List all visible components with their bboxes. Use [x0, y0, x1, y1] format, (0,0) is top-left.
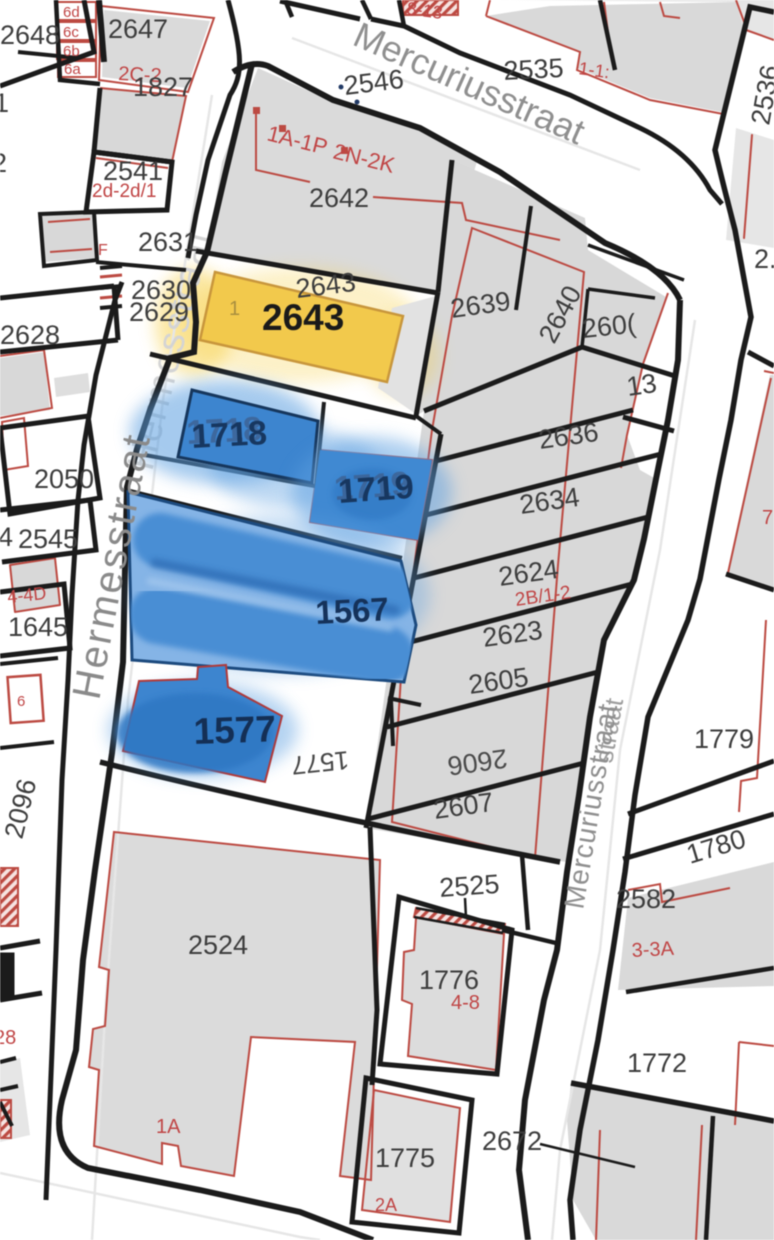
svg-text:2672: 2672: [482, 1126, 542, 1156]
svg-text:2648: 2648: [0, 20, 60, 50]
svg-text:6b: 6b: [63, 43, 80, 60]
svg-text:2642: 2642: [309, 183, 369, 213]
svg-text:1: 1: [0, 88, 9, 118]
svg-text:2628: 2628: [0, 320, 60, 350]
svg-text:2545: 2545: [18, 524, 78, 554]
svg-text:1776: 1776: [419, 965, 479, 995]
svg-text:2d-2d/1: 2d-2d/1: [92, 181, 156, 202]
svg-text:2A: 2A: [375, 1195, 397, 1215]
svg-text:1645: 1645: [8, 612, 68, 642]
svg-text:2524: 2524: [188, 930, 248, 960]
svg-text:2582: 2582: [616, 884, 676, 914]
svg-text:1A: 1A: [156, 1116, 181, 1138]
svg-text:1577: 1577: [193, 708, 277, 752]
svg-text:8-13: 8-13: [405, 0, 443, 23]
svg-text:4-8: 4-8: [451, 992, 480, 1014]
svg-text:2525: 2525: [438, 869, 500, 903]
svg-text:6d: 6d: [63, 4, 80, 21]
svg-text:13: 13: [625, 368, 659, 402]
svg-text:2: 2: [0, 148, 7, 178]
svg-text:6c: 6c: [63, 24, 79, 41]
svg-text:2096: 2096: [0, 776, 42, 842]
svg-text:1775: 1775: [375, 1143, 435, 1173]
svg-text:2631: 2631: [138, 227, 198, 257]
svg-text:2643: 2643: [262, 297, 344, 338]
svg-text:2647: 2647: [108, 14, 168, 44]
svg-text:2629: 2629: [129, 297, 189, 327]
svg-text:6: 6: [17, 693, 25, 710]
svg-text:260(: 260(: [580, 308, 637, 343]
svg-text:6a: 6a: [64, 61, 81, 78]
svg-text:2536: 2536: [745, 63, 774, 127]
svg-text:2535: 2535: [503, 53, 565, 86]
svg-text:4-4D: 4-4D: [6, 583, 47, 607]
svg-text:1-1:: 1-1:: [577, 58, 611, 82]
svg-text:1772: 1772: [627, 1048, 687, 1078]
svg-text:1827: 1827: [133, 72, 193, 102]
svg-text:1577: 1577: [290, 745, 351, 781]
svg-text:1779: 1779: [694, 724, 754, 754]
svg-text:1719: 1719: [337, 468, 415, 511]
svg-text:F: F: [98, 242, 108, 259]
svg-text:4: 4: [0, 522, 13, 552]
svg-text:7: 7: [762, 507, 773, 529]
svg-text:1780: 1780: [683, 823, 749, 869]
svg-text:1567: 1567: [314, 590, 389, 631]
svg-text:3-3A: 3-3A: [631, 938, 675, 962]
svg-text:2...: 2...: [754, 244, 774, 274]
svg-text:2050: 2050: [34, 464, 94, 494]
svg-text:1718: 1718: [190, 414, 268, 456]
svg-text:2546: 2546: [342, 64, 405, 101]
svg-text:28: 28: [0, 1027, 16, 1049]
svg-text:1: 1: [229, 298, 240, 320]
